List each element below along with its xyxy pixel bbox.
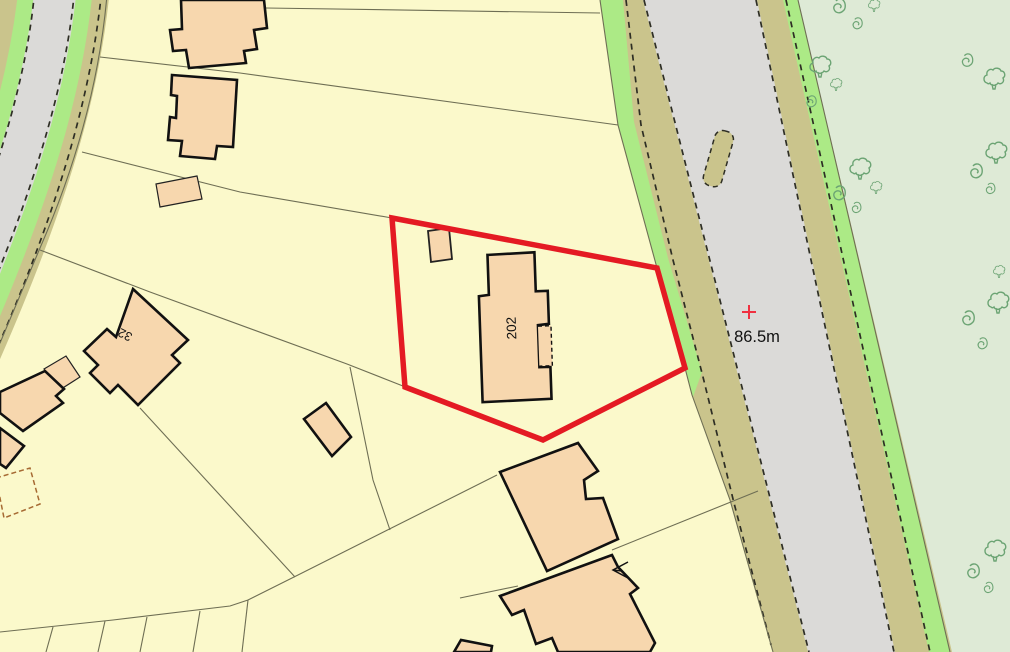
spot-height-label: 86.5m	[734, 328, 780, 346]
map-canvas[interactable]: 86.5m 202 32	[0, 0, 1010, 652]
outbuilding-202	[428, 228, 452, 262]
house-number-202: 202	[504, 317, 520, 340]
building-202-extension-dashed	[538, 326, 552, 366]
